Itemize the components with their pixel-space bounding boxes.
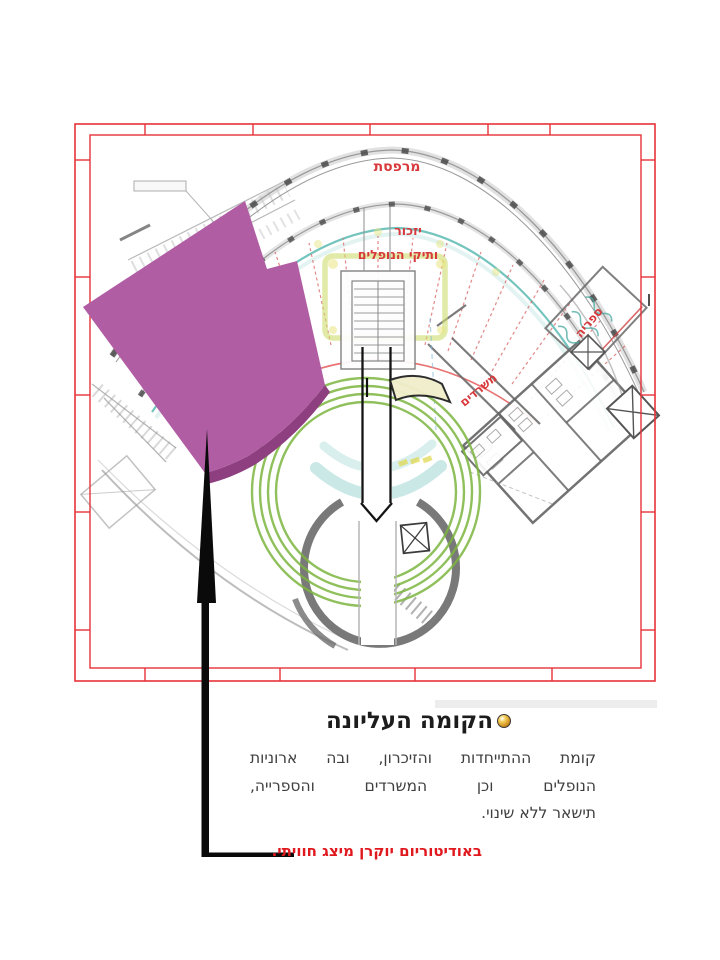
body-line: הנופלים וכן המשרדים והספרייה,	[250, 773, 596, 801]
axis-corridor	[359, 347, 396, 645]
brochure-page: מרפסת יזכור ותיקי הנופלים ספריה משרדים	[0, 0, 720, 960]
body-line: קומת ההתייחדות והזיכרון, ובה ארוניות	[250, 745, 596, 773]
section-body: קומת ההתייחדות והזיכרון, ובה ארוניות הנו…	[250, 745, 596, 828]
yellow-wedge	[390, 376, 450, 402]
gold-bullet-icon	[497, 714, 511, 728]
offices-label: משרדים	[457, 370, 500, 409]
arrow-shaft	[202, 600, 210, 857]
leader-label-box	[134, 181, 186, 191]
yizkor-label-line1: יזכור	[394, 223, 422, 238]
terrace-label: מרפסת	[374, 159, 421, 175]
body-line: תישאר ללא שינוי.	[250, 800, 596, 828]
yizkor-label-line2: ותיקי הנופלים	[358, 247, 438, 262]
section-title: הקומה העליונה	[326, 706, 493, 736]
elevator-icon	[401, 523, 430, 554]
highlight-note: באודיטוריום יוקרן מיצג חוויתי.	[272, 843, 482, 860]
